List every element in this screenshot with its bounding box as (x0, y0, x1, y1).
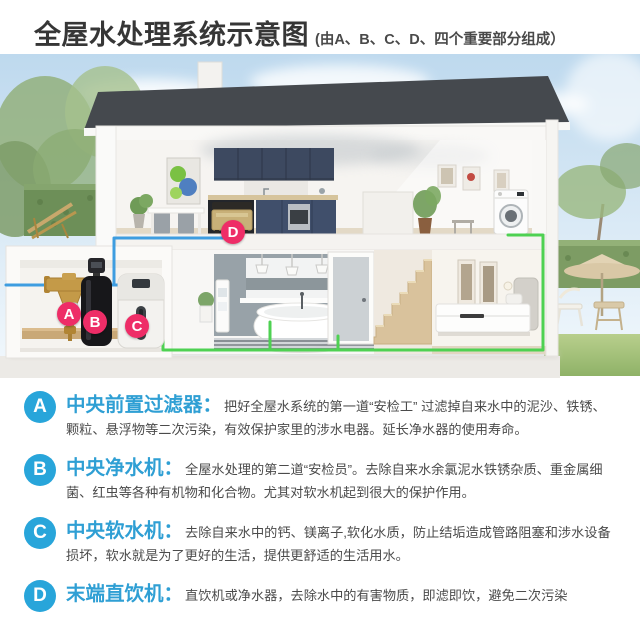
house-illustration: A B C D (0, 54, 640, 380)
section-b-text: 中央净水机：全屋水处理的第二道“安检员”。去除自来水余氯泥水铁锈杂质、重金属细菌… (66, 453, 614, 504)
staircase (374, 250, 432, 354)
upper-right-wall (532, 140, 546, 234)
upper-cabinets (214, 148, 334, 180)
section-c-badge: C (24, 517, 56, 549)
pin-c: C (125, 314, 149, 338)
pin-d: D (221, 220, 245, 244)
section-d: D 末端直饮机：直饮机或净水器，去除水中的有害物质，即滤即饮，避免二次污染 (24, 579, 614, 612)
left-wall (96, 126, 116, 250)
plant-small (198, 292, 214, 322)
section-a-badge: A (24, 391, 56, 423)
section-c-heading: 中央软水机： (66, 520, 183, 542)
section-b-badge: B (24, 454, 56, 486)
legend-sections: A 中央前置过滤器：把好全屋水系统的第一道“安检工” 过滤掉自来水中的泥沙、铁锈… (0, 380, 640, 612)
white-cabinet (363, 192, 413, 234)
page-title: 全屋水处理系统示意图 (34, 13, 309, 52)
washing-machine (494, 190, 528, 234)
section-a: A 中央前置过滤器：把好全屋水系统的第一道“安检工” 过滤掉自来水中的泥沙、铁锈… (24, 390, 614, 441)
section-d-text: 末端直饮机：直饮机或净水器，去除水中的有害物质，即滤即饮，避免二次污染 (66, 579, 614, 609)
countertop (208, 195, 338, 200)
section-d-body: 直饮机或净水器，去除水中的有害物质，即滤即饮，避免二次污染 (185, 588, 567, 603)
section-a-heading: 中央前置过滤器： (66, 394, 222, 416)
section-d-badge: D (24, 580, 56, 612)
right-wall (546, 120, 558, 356)
header: 全屋水处理系统示意图 (由A、B、C、D、四个重要部分组成） (0, 0, 640, 52)
interior-door (328, 252, 374, 344)
page-subtitle: (由A、B、C、D、四个重要部分组成） (315, 28, 565, 52)
oven (288, 204, 310, 230)
section-b-heading: 中央净水机： (66, 457, 183, 479)
section-b: B 中央净水机：全屋水处理的第二道“安检员”。去除自来水余氯泥水铁锈杂质、重金属… (24, 453, 614, 504)
section-a-text: 中央前置过滤器：把好全屋水系统的第一道“安检工” 过滤掉自来水中的泥沙、铁锈、颗… (66, 390, 614, 441)
backsplash (244, 181, 308, 195)
pin-b: B (83, 310, 107, 334)
section-c: C 中央软水机：去除自来水中的钙、镁离子,软化水质，防止结垢造成管路阻塞和涉水设… (24, 516, 614, 567)
wall-painting (167, 158, 200, 204)
pin-a: A (57, 302, 81, 326)
bedroom (432, 250, 546, 354)
section-c-text: 中央软水机：去除自来水中的钙、镁离子,软化水质，防止结垢造成管路阻塞和涉水设备损… (66, 516, 614, 567)
upper-floor (116, 134, 532, 235)
section-d-heading: 末端直饮机： (66, 583, 183, 605)
